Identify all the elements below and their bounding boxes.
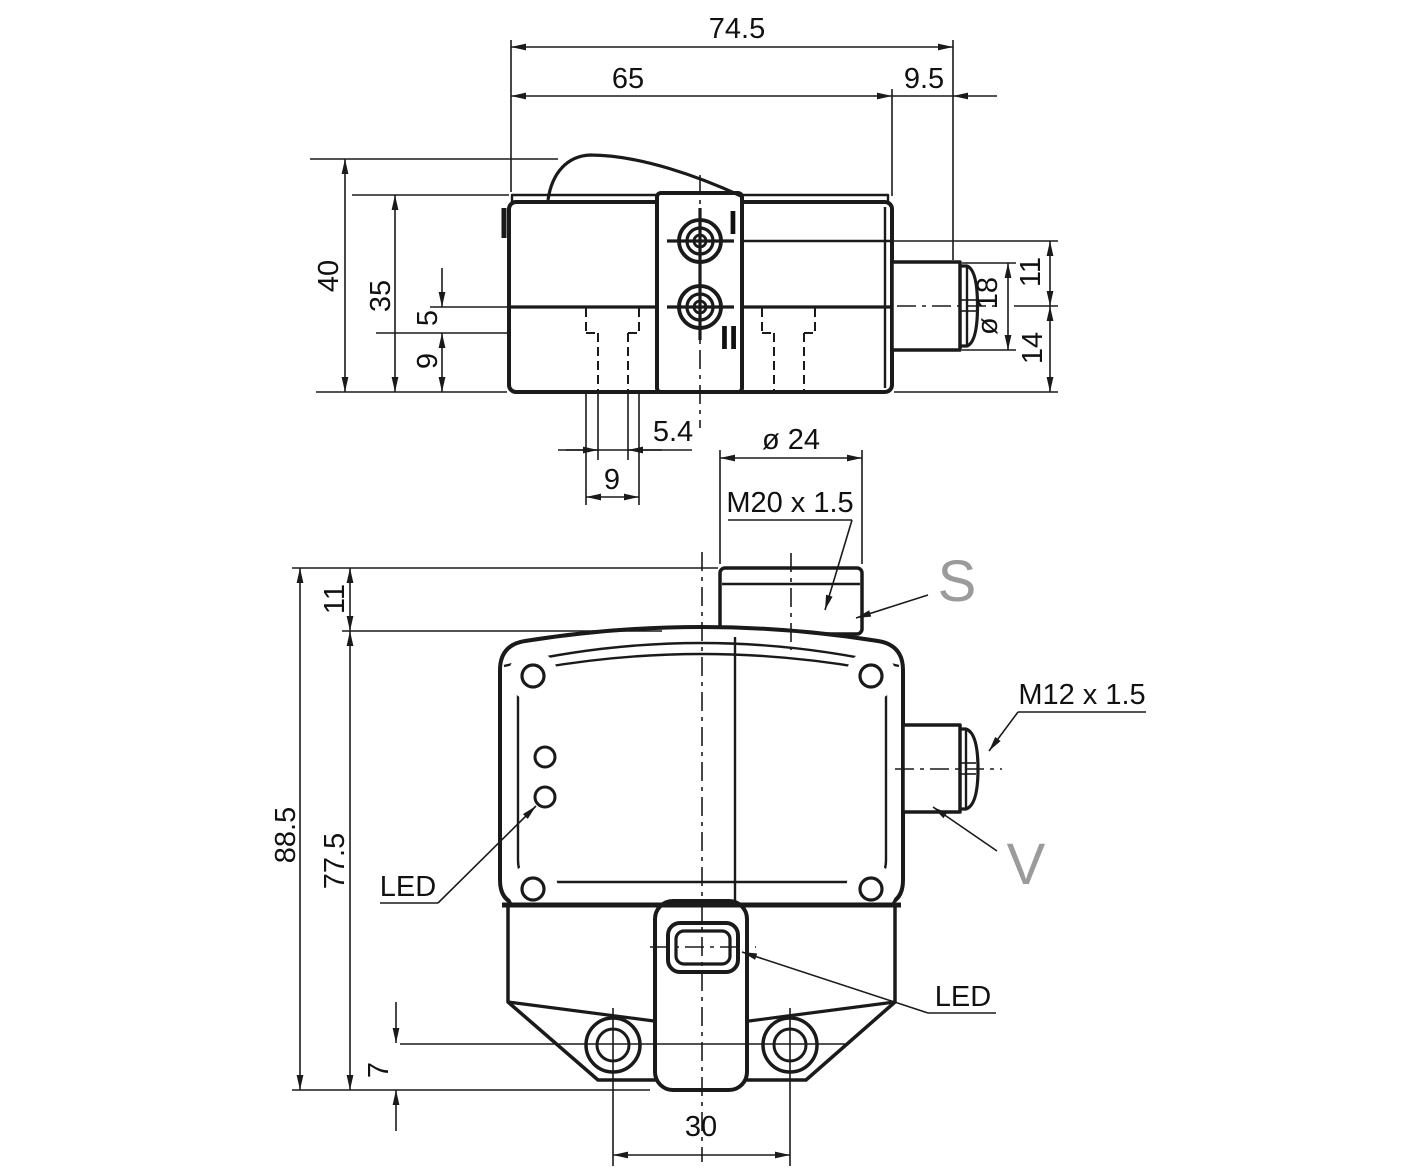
connector-thread-label: M12 x 1.5: [1018, 679, 1145, 711]
v-leader-arrow: [933, 807, 997, 851]
dim-body-height-label: 35: [365, 280, 397, 312]
dim-foot-height-label: 7: [363, 1062, 395, 1078]
front-view: ø 24 M20 x 1.5 S M12 x 1.5 V LED LED 88.…: [270, 424, 1146, 1166]
dim-slot-wide-label: 9: [604, 464, 620, 496]
dim-total-height-label: 40: [313, 260, 345, 292]
sensor-port-label: S: [938, 549, 977, 614]
dim-hole-spacing-label: 30: [685, 1111, 717, 1143]
dim-connector-below-axis-label: 14: [1017, 332, 1049, 364]
valve-port-label: V: [1007, 832, 1046, 897]
s-leader-arrow: [856, 595, 928, 618]
dim-groove-offset-label: 5: [412, 310, 444, 326]
side-view: 74.5 65 9.5 40 35 5 9 5.4 9 ø 18 11 14 I…: [310, 13, 1058, 505]
led-front-label: LED: [935, 981, 991, 1013]
gland-thread-label: M20 x 1.5: [726, 487, 853, 519]
dim-gland-height-label: 11: [319, 584, 351, 614]
dim-groove-depth-label: 9: [412, 353, 444, 369]
technical-drawing-canvas: 74.5 65 9.5 40 35 5 9 5.4 9 ø 18 11 14 I…: [0, 0, 1417, 1171]
dimension-drawing-svg: 74.5 65 9.5 40 35 5 9 5.4 9 ø 18 11 14 I…: [0, 0, 1417, 1171]
mount-hole-1-label: I: [728, 204, 737, 241]
dim-connector-above-axis-label: 11: [1015, 257, 1047, 287]
dim-connector-diameter-label: ø 18: [972, 277, 1004, 335]
dim-body-width-label: 65: [612, 63, 644, 95]
led-side-label: LED: [380, 871, 436, 903]
front-connector-m12: [895, 725, 1002, 812]
dim-slot-narrow-label: 5.4: [653, 416, 693, 448]
dim-total-width-label: 74.5: [709, 13, 765, 45]
mount-hole-2-label: II: [720, 319, 738, 356]
dim-front-total-height-label: 88.5: [270, 807, 302, 863]
dim-gland-diameter-label: ø 24: [762, 424, 820, 456]
m12-leader-arrow: [989, 712, 1018, 751]
dim-front-body-height-label: 77.5: [319, 833, 351, 889]
dim-connector-length-label: 9.5: [904, 63, 944, 95]
